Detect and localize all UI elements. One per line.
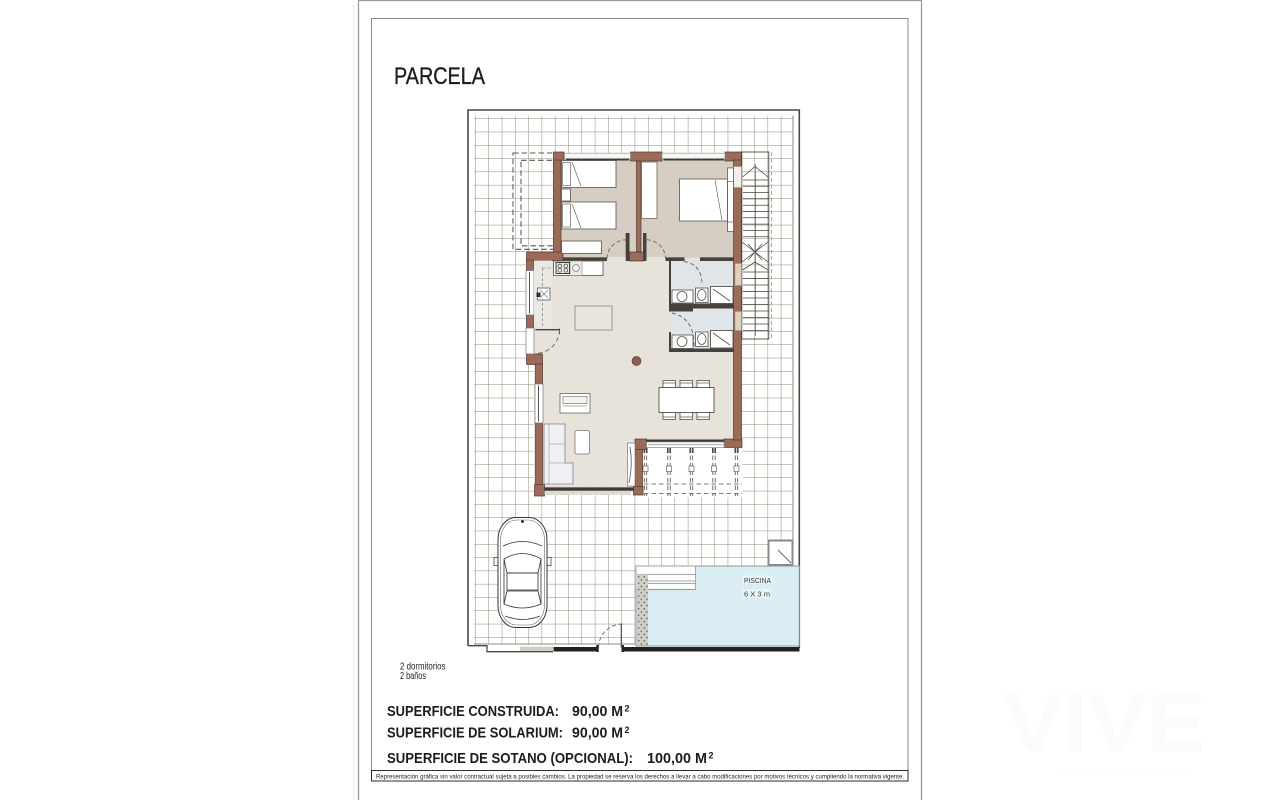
svg-text:PARCELA: PARCELA <box>394 63 485 90</box>
svg-text:100,00 M: 100,00 M <box>647 750 707 767</box>
svg-text:90,00 M: 90,00 M <box>572 703 623 720</box>
svg-text:2: 2 <box>709 751 714 761</box>
svg-text:PISCINA: PISCINA <box>744 576 772 585</box>
svg-text:2 baños: 2 baños <box>400 671 426 682</box>
svg-text:2: 2 <box>625 704 630 714</box>
svg-text:SUPERFICIE DE SOLARIUM:: SUPERFICIE DE SOLARIUM: <box>387 725 563 742</box>
svg-text:SUPERFICIE DE SOTANO (OPCIONAL: SUPERFICIE DE SOTANO (OPCIONAL): <box>387 750 633 767</box>
svg-text:SUPERFICIE CONSTRUIDA:: SUPERFICIE CONSTRUIDA: <box>387 703 559 720</box>
svg-text:6 X 3 m: 6 X 3 m <box>744 590 770 599</box>
svg-text:VIVE: VIVE <box>1004 678 1206 769</box>
svg-text:2: 2 <box>625 725 630 735</box>
svg-text:Representación gráfica sin val: Representación gráfica sin valor contrac… <box>376 774 904 781</box>
svg-text:90,00 M: 90,00 M <box>572 725 623 742</box>
